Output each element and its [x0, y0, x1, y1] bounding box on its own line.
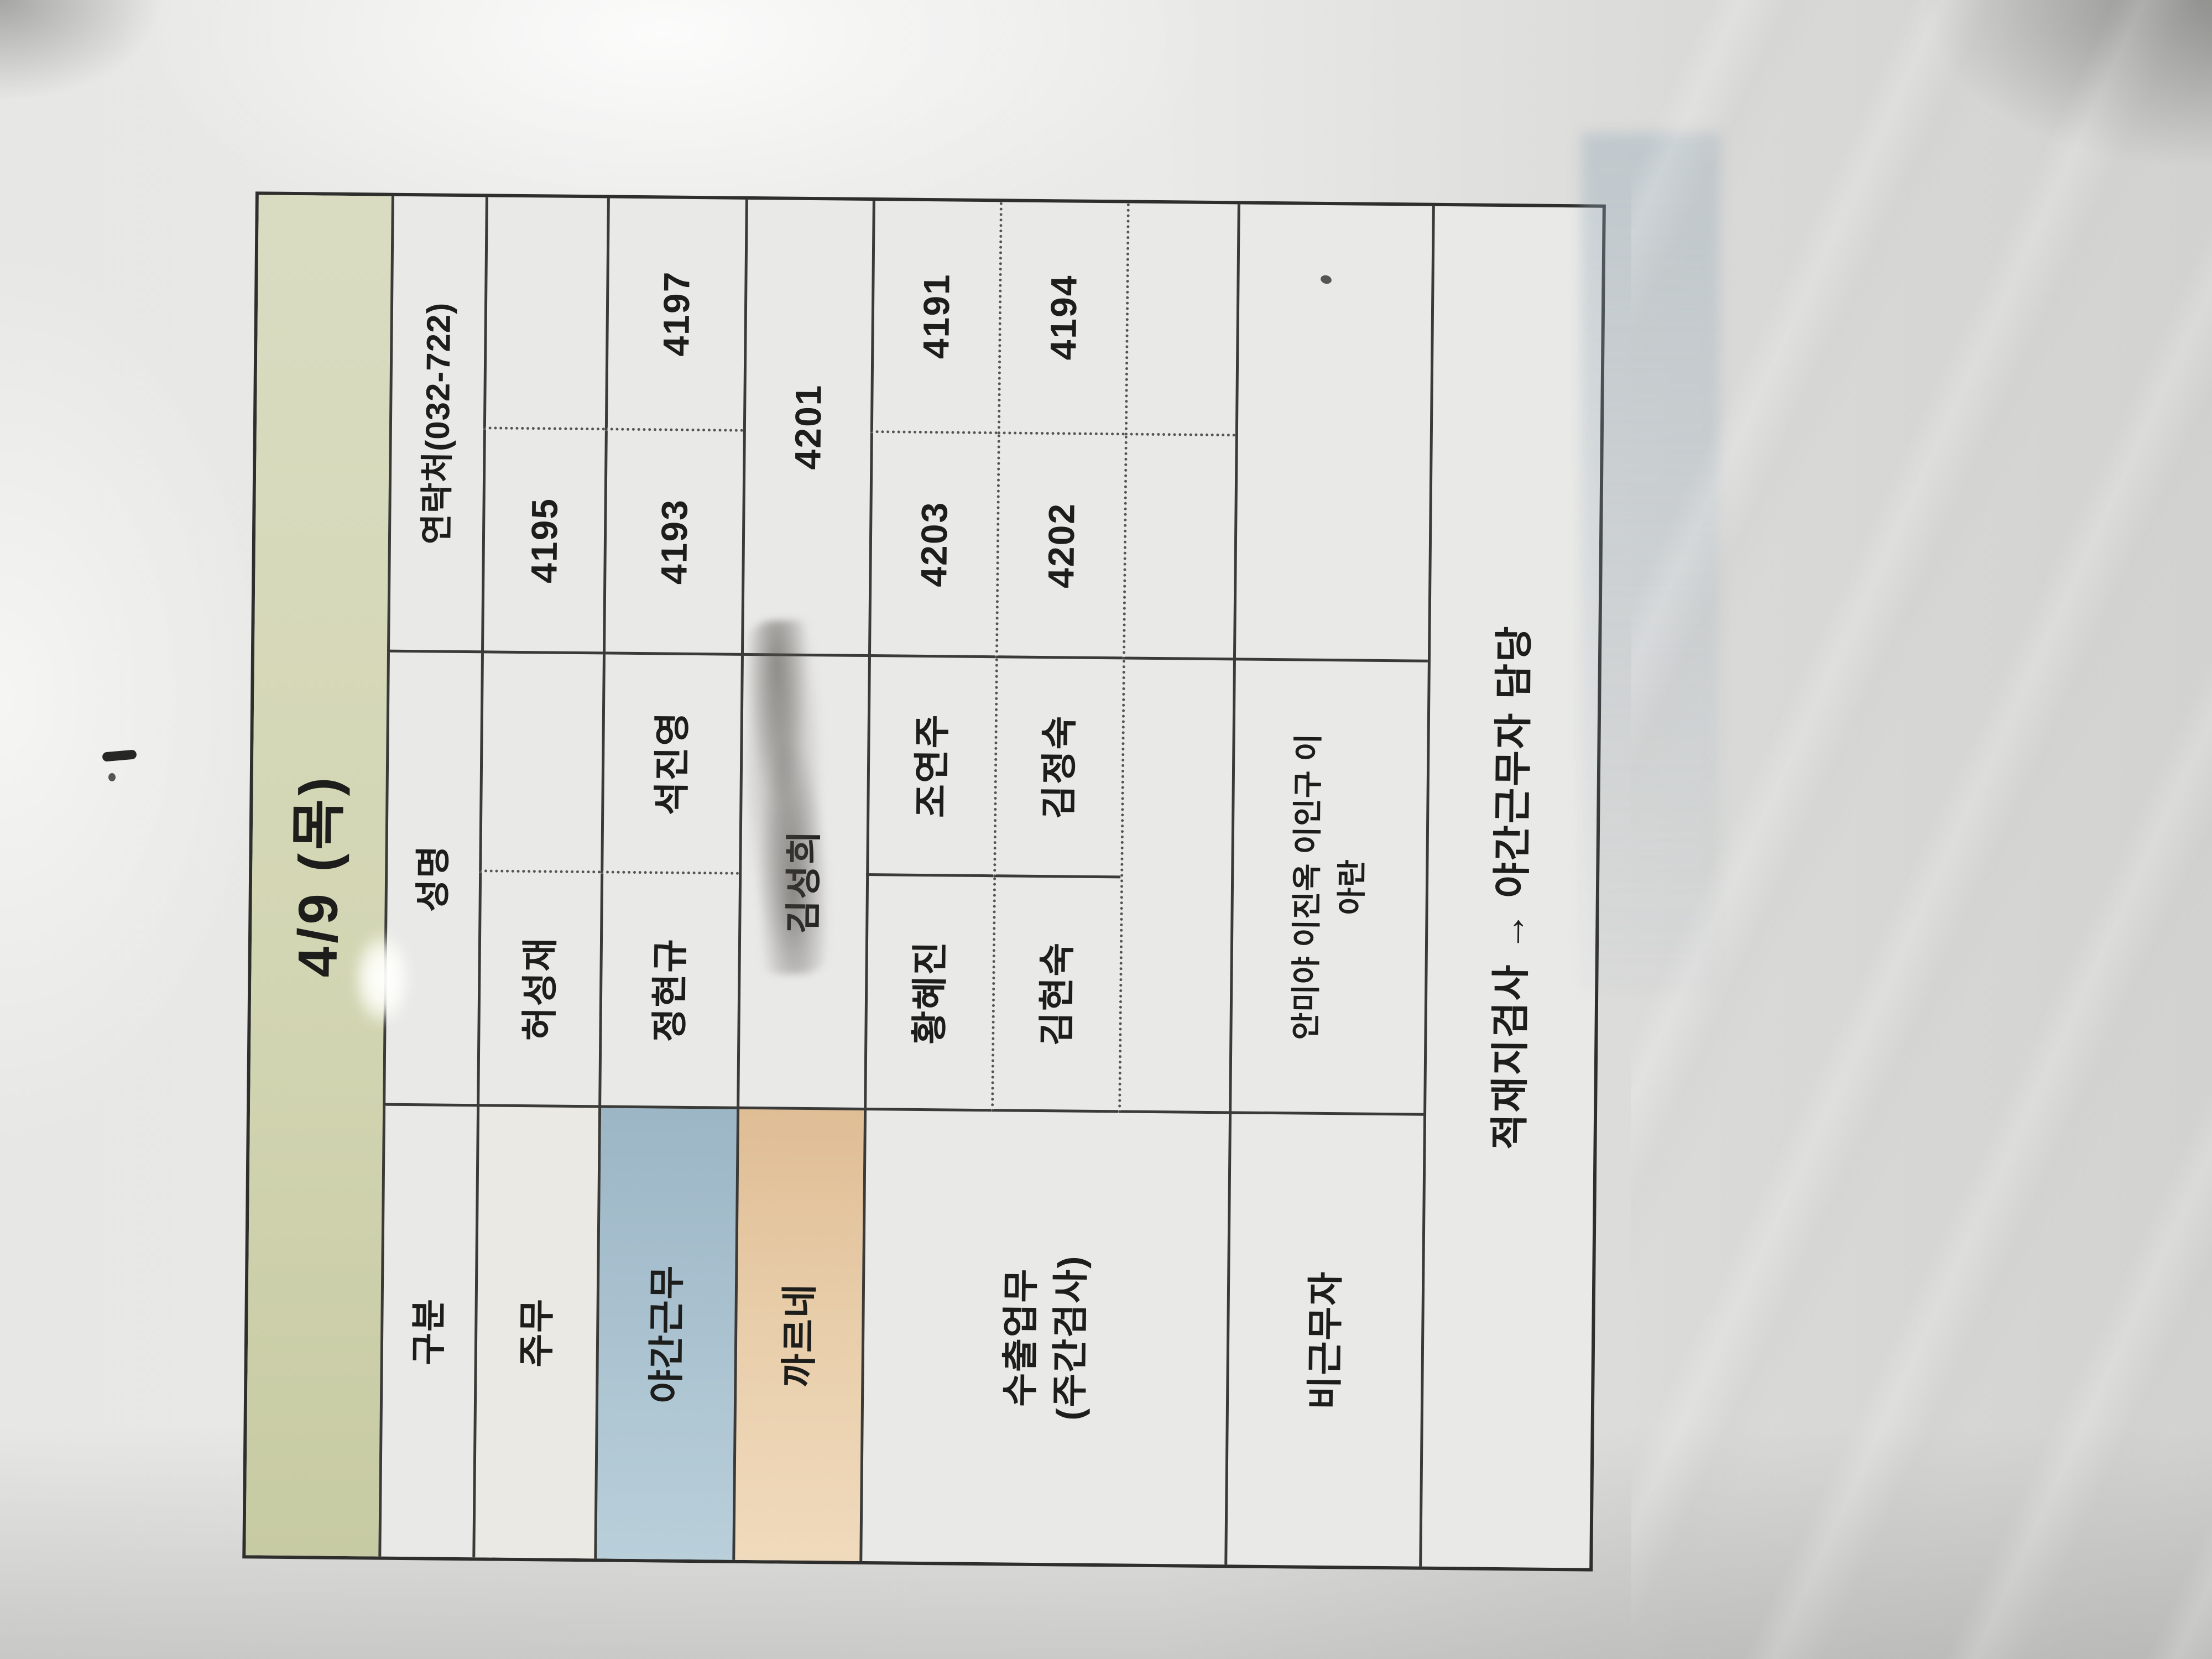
reflection-streaks: [1631, 0, 2212, 1659]
export-b-contact-1: 4202: [995, 434, 1125, 659]
footer-note: 적재지검사 → 야간근무자 담당: [1419, 206, 1603, 1568]
photo-background: 4/9 (목) 구분 성명 연락처(032-722) 주무 허성재 4195 야…: [0, 0, 2212, 1659]
export-a-contact-2: 4191: [870, 201, 1000, 434]
category-carnet: 까르네: [732, 1109, 864, 1561]
export-c-contact-1-empty: [1123, 435, 1235, 660]
pencil-scribble-mark: [741, 619, 834, 975]
chief-contact: 4195: [481, 429, 605, 654]
carnet-contact: 4201: [741, 200, 873, 657]
header-category: 구분: [378, 1106, 477, 1558]
duty-roster: 4/9 (목) 구분 성명 연락처(032-722) 주무 허성재 4195 야…: [242, 198, 1605, 1571]
category-export: 수출업무 (주간검사): [859, 1110, 1229, 1564]
night-name-1: 정현규: [598, 873, 739, 1109]
header-contact: 연락처(032-722): [387, 196, 486, 654]
night-name-2: 석진영: [601, 654, 741, 874]
export-c-contact-2-empty: [1125, 203, 1238, 436]
chief-name: 허성재: [477, 872, 601, 1108]
night-contact-2: 4197: [605, 198, 745, 431]
duty-roster-table: 4/9 (목) 구분 성명 연락처(032-722) 주무 허성재 4195 야…: [242, 191, 1606, 1571]
header-name: 성명: [383, 653, 481, 1107]
night-contact-1: 4193: [603, 430, 743, 655]
export-b-name-2: 김정숙: [993, 658, 1123, 878]
export-b-name-1: 김현숙: [991, 877, 1120, 1113]
export-b-contact-2: 4194: [998, 202, 1127, 435]
category-chief: 주무: [472, 1107, 598, 1558]
chief-contact-2-empty: [483, 197, 607, 430]
export-a-contact-1: 4203: [868, 433, 998, 658]
category-off-duty: 비근무자: [1224, 1114, 1423, 1566]
chief-name-2-empty: [479, 653, 603, 873]
pen-mark: [102, 749, 137, 761]
off-duty-contact-empty: [1233, 204, 1432, 662]
glare-spot: [352, 929, 413, 1029]
export-a-name-1: 황혜진: [864, 876, 993, 1112]
off-duty-names: 안미야 이진옥 이인구 이 아란: [1229, 660, 1428, 1115]
pen-dot: [108, 773, 116, 781]
table-title: 4/9 (목): [246, 195, 392, 1556]
category-night-shift: 야간근무: [594, 1108, 737, 1559]
export-a-name-2: 조연주: [866, 657, 995, 877]
export-c-name-empty: [1118, 659, 1233, 1114]
